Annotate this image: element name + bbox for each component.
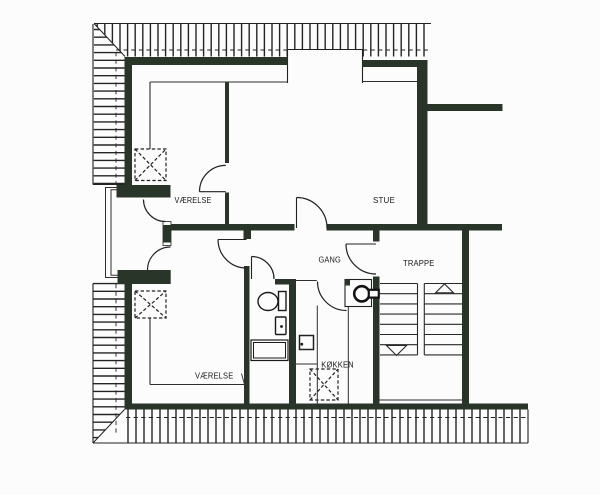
svg-text:VÆRELSE: VÆRELSE bbox=[195, 371, 234, 381]
svg-text:VÆRELSE: VÆRELSE bbox=[175, 195, 212, 205]
svg-text:GANG: GANG bbox=[319, 255, 342, 265]
svg-text:TRAPPE: TRAPPE bbox=[403, 258, 435, 268]
svg-text:KØKKEN: KØKKEN bbox=[321, 360, 354, 370]
svg-text:STUE: STUE bbox=[373, 195, 395, 205]
